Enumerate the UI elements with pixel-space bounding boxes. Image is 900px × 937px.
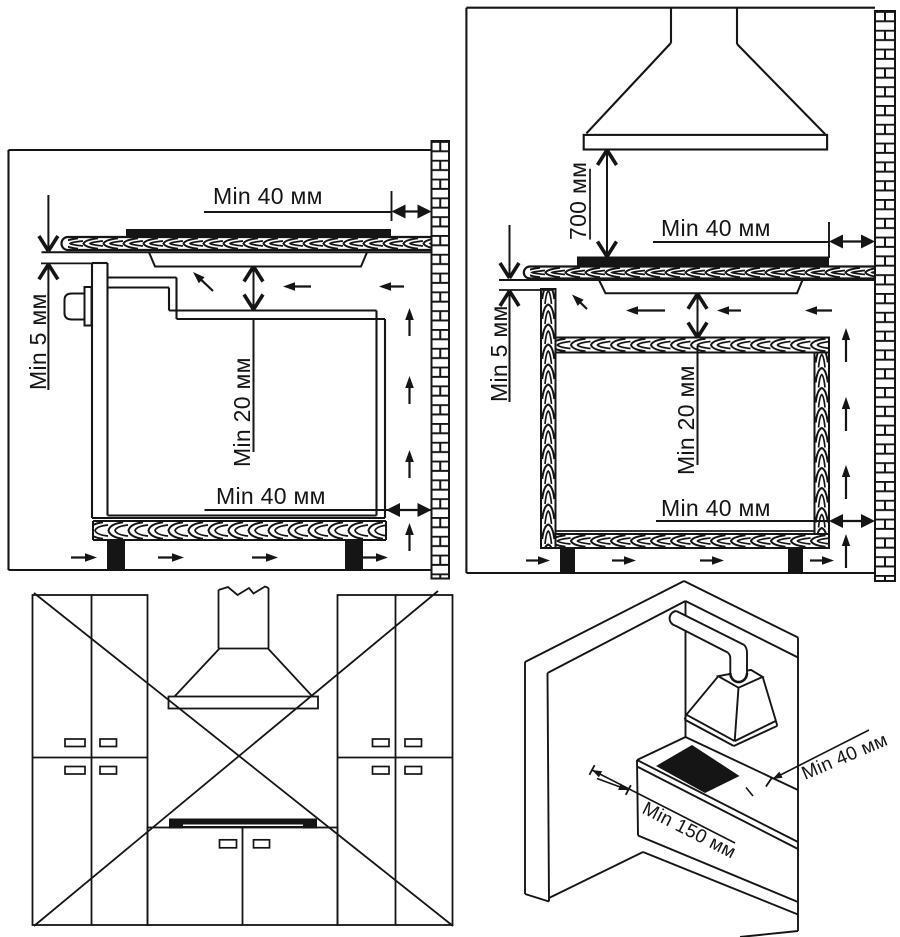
svg-text:Min 5 мм: Min 5 мм [25, 293, 51, 390]
svg-text:700 мм: 700 мм [565, 162, 591, 240]
svg-text:Min 40 мм: Min 40 мм [661, 215, 771, 241]
svg-text:Min 5 мм: Min 5 мм [486, 305, 512, 402]
svg-text:Min 40 мм: Min 40 мм [213, 183, 323, 209]
svg-text:Min 20 мм: Min 20 мм [673, 365, 699, 475]
svg-text:Min 40 мм: Min 40 мм [216, 483, 326, 509]
svg-text:Min 40 мм: Min 40 мм [661, 495, 771, 521]
svg-text:Min 20 мм: Min 20 мм [229, 357, 255, 467]
